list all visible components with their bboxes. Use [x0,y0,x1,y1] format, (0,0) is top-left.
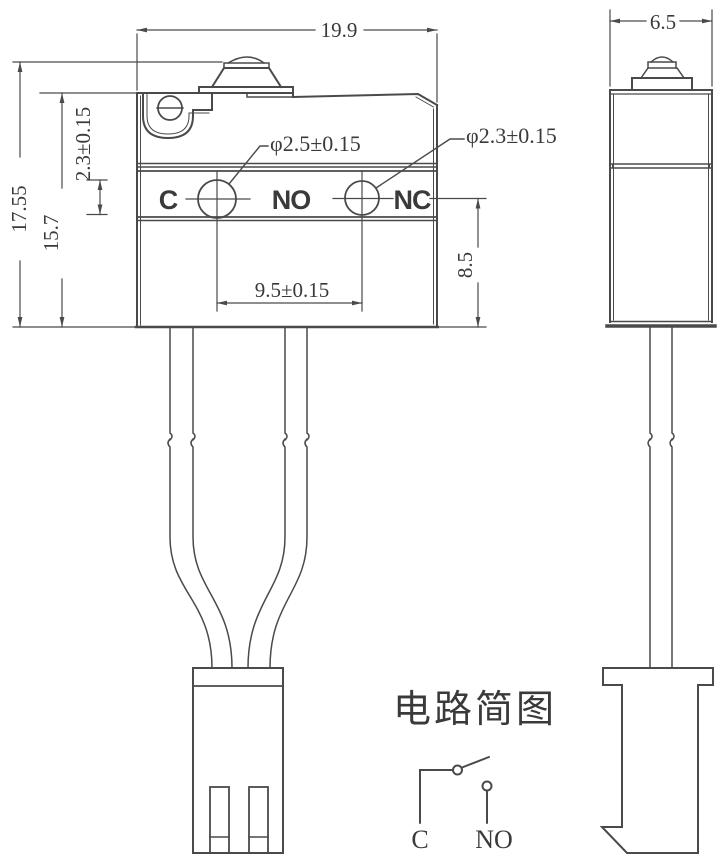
dim-total-height-label: 17.55 [7,185,31,232]
connector-side-outline [602,668,713,853]
circuit-label-c: C [411,825,428,854]
front-connector [193,668,283,853]
circuit-pole-c [420,770,452,823]
circuit-lever [462,757,489,768]
dim-body-height-label: 15.7 [39,215,63,252]
terminal-label-no: NO [272,185,311,215]
dim-17_55-arrow-bottom [18,317,23,327]
dim-9_5-arrow-left [217,301,227,306]
side-plunger-plate [632,78,692,90]
terminal-label-c: C [159,185,178,215]
dim-9_5-arrow-right [352,301,362,306]
dim-17_55-arrow-top [18,62,23,72]
drawing-text: 19.9 17.55 15.7 2.3±0.15 φ2.5±0.15 φ2.3±… [7,10,676,854]
side-body-outline [607,90,715,326]
circuit-contact-c [453,766,462,775]
side-connector [602,668,713,853]
dim-hole2-diameter-label: φ2.3±0.15 [466,123,557,148]
dim-8_5-arrow-top [476,199,481,209]
dim-hole-vertical-label: 2.3±0.15 [71,107,95,182]
dim-side-width-label: 6.5 [650,10,676,34]
wire-line-4 [270,327,309,668]
dim-6_5-arrow-right [702,19,712,24]
dim-hole-pitch-label: 9.5±0.15 [255,278,330,302]
connector-front-slot-2 [249,787,268,853]
leader-hole1 [229,146,268,184]
circuit-contact-no [483,782,492,791]
connector-front-outline [193,668,283,853]
dim-terminal-depth-label: 8.5 [453,252,477,278]
dim-15_7-arrow-top [60,93,65,103]
dim-8_5-arrow-bottom [476,317,481,327]
front-mounting-hole [143,93,212,138]
connector-front-slot-1 [210,787,229,853]
dim-2_3-arrow-top [98,180,103,190]
circuit-label-no: NO [475,825,513,854]
side-view [602,10,715,853]
side-plunger-cap [648,62,676,68]
circuit-diagram [420,757,492,823]
terminal-label-nc: NC [394,185,431,215]
side-plunger [632,57,692,90]
dim-6_5-arrow-left [610,19,620,24]
plunger-trapezoid [212,68,281,87]
dim-15_7-arrow-bottom [60,317,65,327]
wire-line-2 [191,327,232,668]
side-wire [648,327,674,668]
dim-19_9-arrow-left [137,28,147,33]
dim-width-label: 19.9 [321,18,358,42]
circuit-title: 电路简图 [393,689,557,731]
front-wires [168,327,309,668]
side-wire-line-1 [648,327,652,668]
dim-hole1-diameter-label: φ2.5±0.15 [270,131,361,156]
technical-drawing-page: 19.9 17.55 15.7 2.3±0.15 φ2.5±0.15 φ2.3±… [0,0,720,859]
dim-2_3-arrow-bottom [98,205,103,215]
dim-19_9-arrow-right [427,28,437,33]
front-top-slope [293,94,437,105]
front-plunger [199,57,293,97]
side-plunger-trapezoid [641,68,684,78]
side-wire-line-2 [670,327,674,668]
wire-line-1 [168,327,212,668]
wire-line-3 [248,327,287,668]
microswitch-drawing: 19.9 17.55 15.7 2.3±0.15 φ2.5±0.15 φ2.3±… [0,0,720,859]
plunger-dome [228,57,264,63]
